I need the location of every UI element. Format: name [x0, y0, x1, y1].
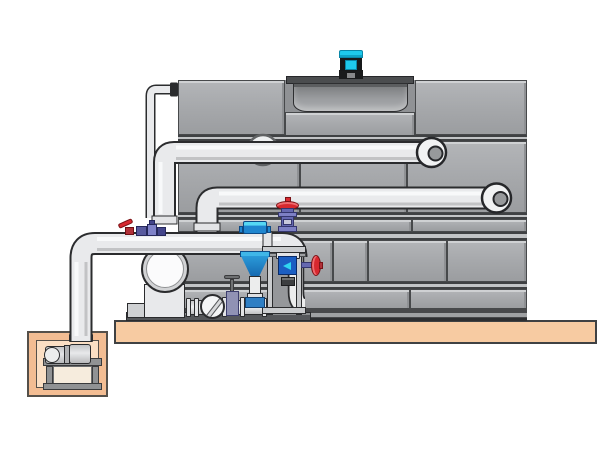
globe-valve-flange-top — [278, 212, 297, 217]
separator-drain-flange — [245, 297, 265, 308]
globe-valve-flange-bottom — [278, 226, 297, 232]
flow-meter — [278, 256, 297, 275]
frame-bottom-rail — [262, 307, 306, 314]
diagram-canvas — [0, 0, 600, 450]
manifold-block-3 — [157, 227, 166, 236]
manifold-block-1 — [136, 226, 147, 236]
makeup-nub — [170, 83, 178, 97]
globe-valve-collar — [283, 219, 292, 225]
separator-cap — [243, 221, 267, 234]
elbow-ring-middle — [482, 184, 511, 213]
riserB-flange — [194, 223, 220, 231]
ball-valve-body — [125, 227, 134, 235]
riserA-flange — [152, 216, 177, 224]
separator-cap-tab-left — [239, 226, 243, 233]
separator-cap-tab-right — [267, 226, 271, 233]
flow-meter-arrow-icon — [283, 262, 291, 270]
piping-layer — [0, 0, 600, 450]
manifold-block-2 — [147, 224, 157, 236]
meter-junction-box — [281, 277, 295, 286]
frame-post-left — [267, 253, 273, 315]
side-valve-hub — [319, 262, 323, 269]
elbow-ring-upper — [417, 138, 446, 167]
